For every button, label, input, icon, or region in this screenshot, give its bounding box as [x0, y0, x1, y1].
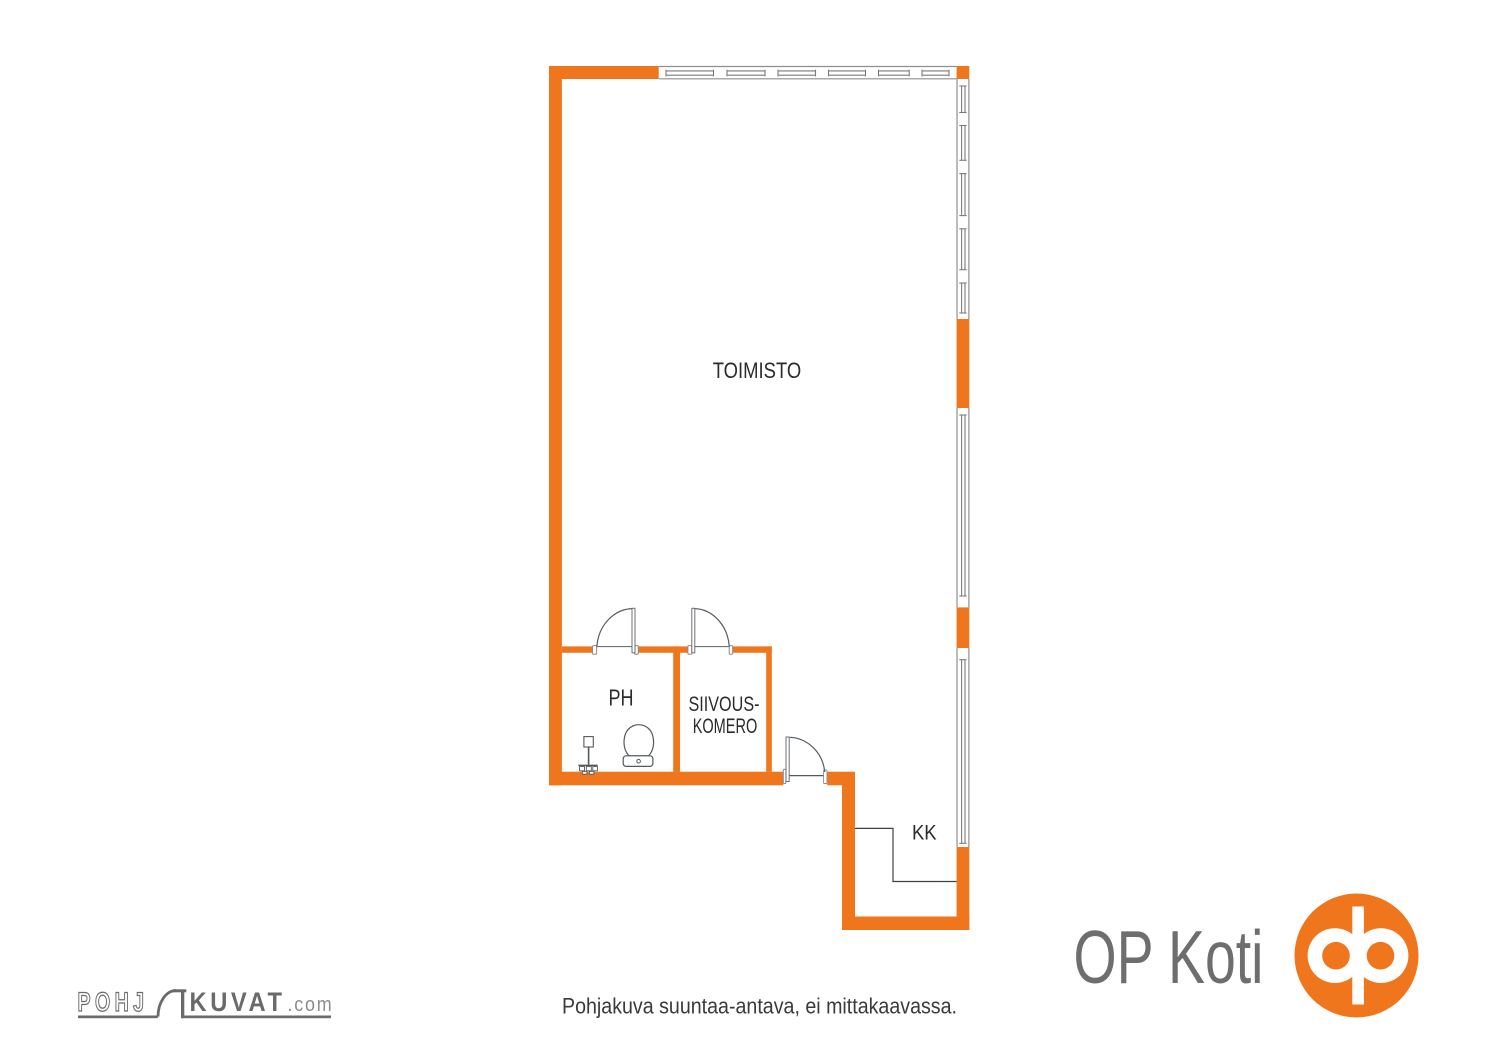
svg-text:KOMERO: KOMERO	[693, 714, 758, 738]
svg-text:POHJ: POHJ	[78, 987, 149, 1017]
svg-text:KUVAT: KUVAT	[190, 987, 286, 1017]
svg-text:TOIMISTO: TOIMISTO	[713, 358, 802, 383]
svg-text:.com: .com	[288, 994, 334, 1016]
svg-text:PH: PH	[609, 684, 634, 710]
svg-text:SIIVOUS-: SIIVOUS-	[689, 692, 760, 716]
svg-text:Pohjakuva suuntaa-antava, ei m: Pohjakuva suuntaa-antava, ei mittakaavas…	[562, 994, 957, 1019]
svg-text:KK: KK	[912, 820, 937, 844]
svg-text:OP Koti: OP Koti	[1074, 915, 1264, 999]
